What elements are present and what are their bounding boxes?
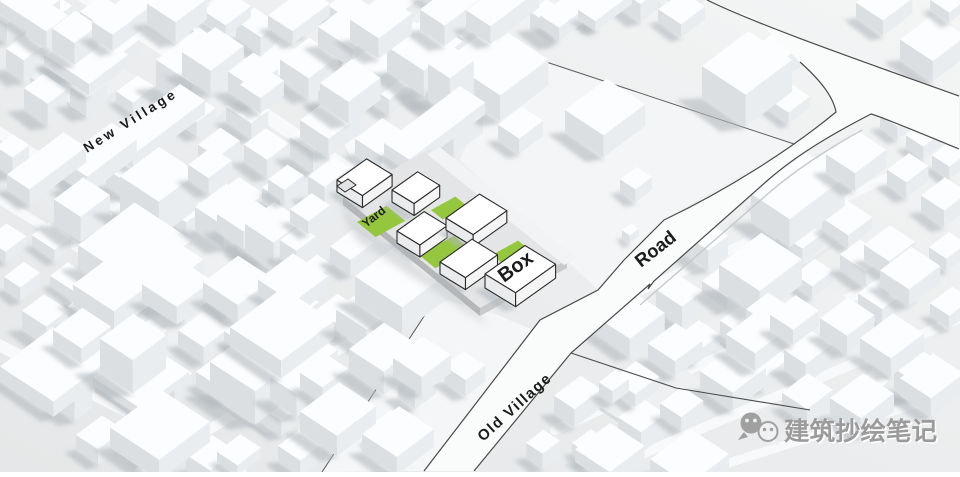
- svg-text:建筑抄绘笔记: 建筑抄绘笔记: [784, 417, 938, 446]
